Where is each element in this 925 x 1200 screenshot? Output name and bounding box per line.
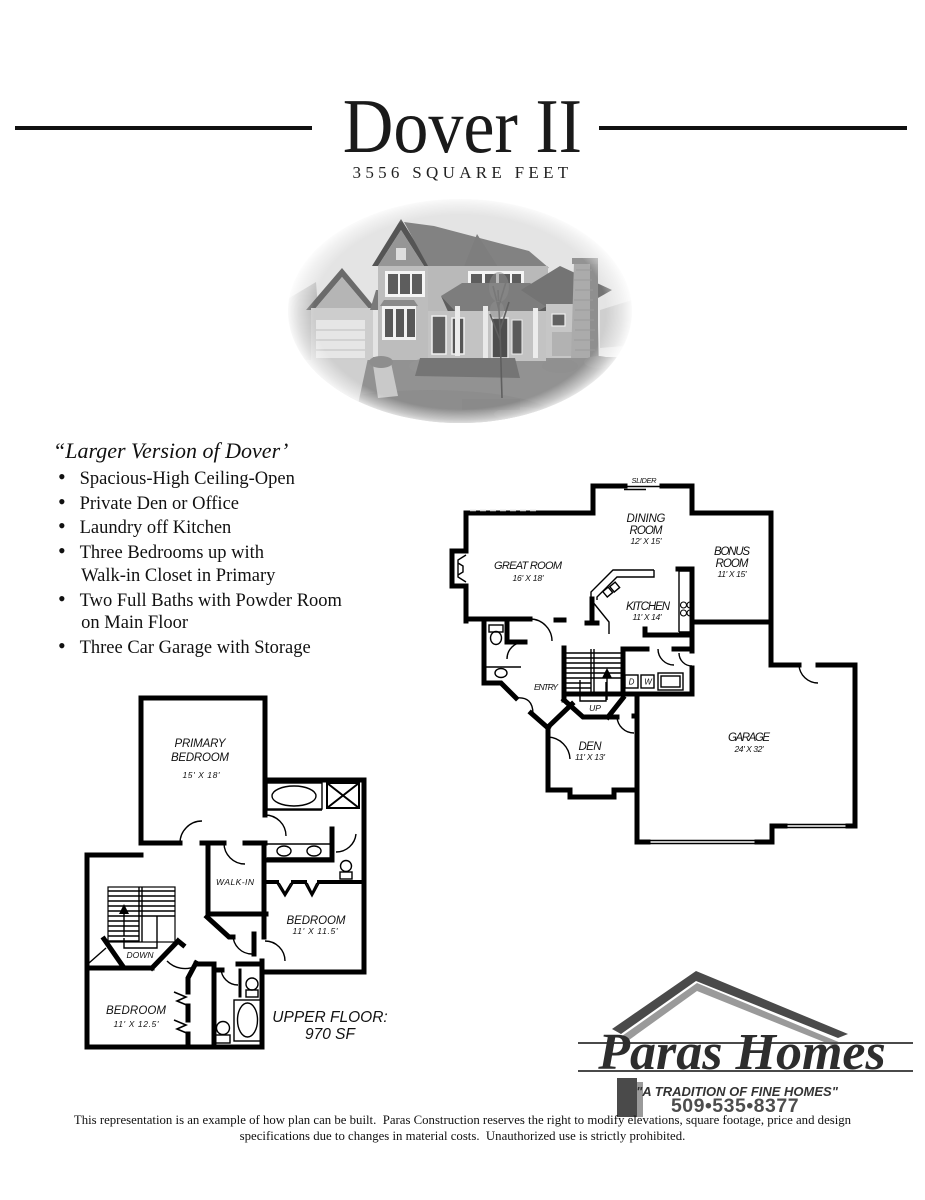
svg-text:16' X 18': 16' X 18' [513, 573, 544, 583]
svg-text:D: D [629, 678, 635, 687]
svg-text:11' X 13': 11' X 13' [575, 752, 605, 762]
svg-text:BEDROOM: BEDROOM [106, 1005, 166, 1017]
svg-text:PRIMARY: PRIMARY [175, 738, 227, 750]
svg-text:24' X 32': 24' X 32' [734, 744, 764, 754]
svg-text:UP: UP [589, 703, 601, 713]
svg-text:11' X 11.5': 11' X 11.5' [293, 926, 338, 936]
svg-text:11' X 14': 11' X 14' [633, 612, 662, 622]
svg-text:11' X 15': 11' X 15' [718, 569, 747, 579]
svg-text:W: W [644, 678, 653, 687]
svg-text:SLIDER: SLIDER [632, 476, 658, 485]
svg-text:GARAGE: GARAGE [728, 732, 770, 744]
svg-text:GREAT ROOM: GREAT ROOM [494, 560, 563, 572]
svg-text:DINING: DINING [627, 513, 666, 525]
svg-text:BONUS: BONUS [714, 546, 750, 558]
svg-text:DOWN: DOWN [127, 950, 155, 960]
svg-text:12' X 15': 12' X 15' [631, 536, 662, 546]
svg-text:11' X 12.5': 11' X 12.5' [114, 1019, 159, 1029]
svg-text:15' X 18': 15' X 18' [183, 770, 220, 780]
svg-text:WALK-IN: WALK-IN [216, 877, 255, 887]
svg-text:Paras Homes: Paras Homes [597, 1024, 885, 1081]
svg-text:BEDROOM: BEDROOM [171, 752, 229, 764]
svg-text:ENTRY: ENTRY [534, 682, 559, 692]
